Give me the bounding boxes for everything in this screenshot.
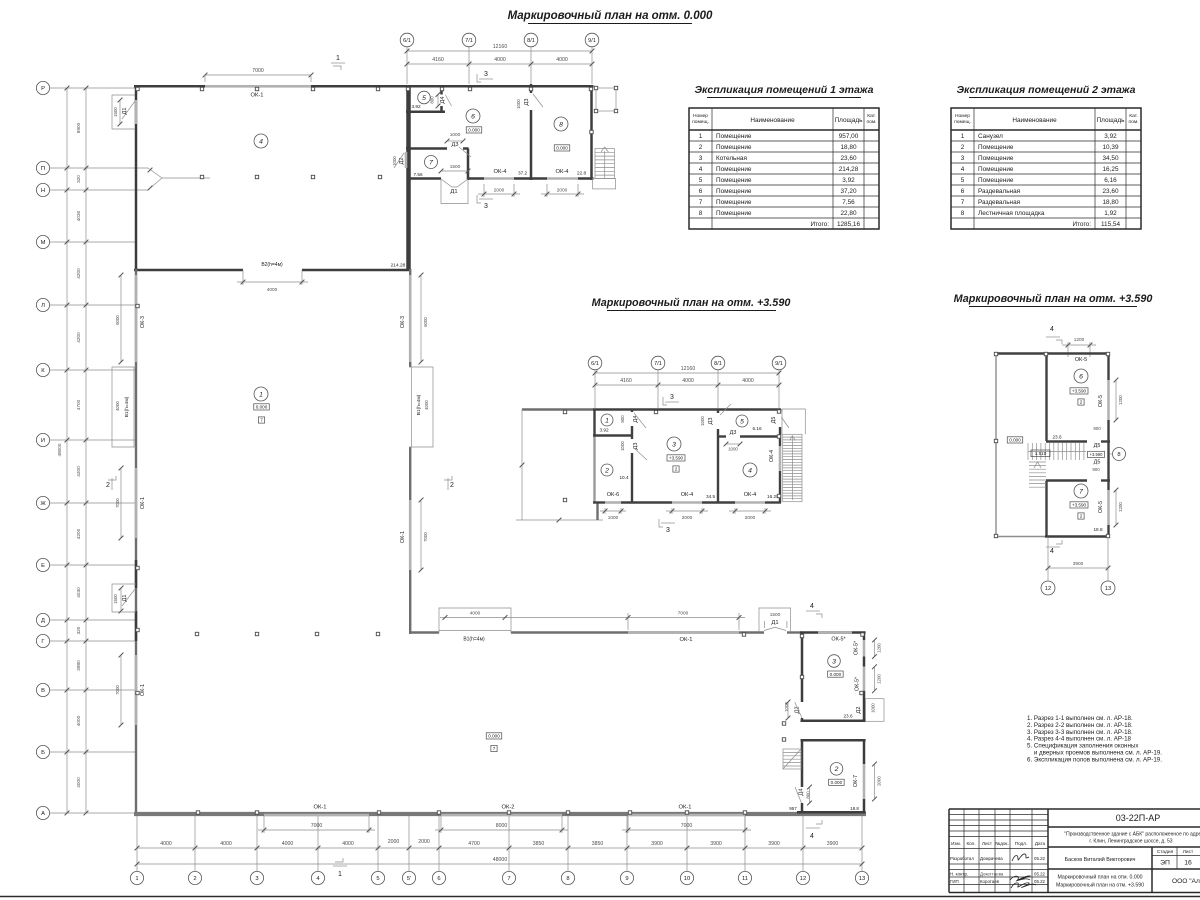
svg-text:34.5: 34.5 [706, 494, 716, 499]
svg-text:7,56: 7,56 [842, 199, 855, 206]
svg-text:7/1: 7/1 [465, 38, 473, 44]
svg-text:2000: 2000 [388, 839, 400, 845]
svg-text:7: 7 [429, 159, 433, 166]
svg-text:Д4: Д4 [633, 416, 639, 423]
svg-text:320: 320 [76, 175, 81, 183]
svg-text:4030: 4030 [76, 587, 81, 598]
svg-text:Д4: Д4 [799, 789, 805, 796]
svg-text:9/1: 9/1 [588, 38, 596, 44]
svg-text:+3.590: +3.590 [1072, 503, 1087, 508]
svg-text:Д5: Д5 [1094, 443, 1101, 449]
svg-text:пом.: пом. [866, 120, 876, 125]
svg-text:ООО "Альп: ООО "Альп [1172, 878, 1200, 885]
svg-text:05.22: 05.22 [1034, 879, 1046, 884]
svg-text:13: 13 [1105, 586, 1111, 592]
svg-text:Домрачева: Домрачева [980, 856, 1003, 861]
svg-text:3: 3 [699, 155, 703, 162]
svg-text:6.16: 6.16 [752, 426, 762, 431]
svg-text:6: 6 [1079, 373, 1083, 380]
svg-text:7.56: 7.56 [413, 172, 423, 177]
svg-text:3: 3 [961, 155, 965, 162]
svg-text:4000: 4000 [742, 378, 754, 384]
svg-text:ОК-1: ОК-1 [678, 805, 691, 811]
svg-text:9: 9 [625, 876, 628, 882]
svg-text:Л: Л [41, 303, 45, 309]
svg-text:+3.590: +3.590 [669, 456, 684, 461]
svg-text:В1(h=4м): В1(h=4м) [124, 396, 130, 417]
svg-text:помещ.: помещ. [954, 120, 971, 125]
svg-text:3: 3 [255, 876, 258, 882]
svg-text:4: 4 [810, 833, 814, 840]
svg-text:Помещение: Помещение [978, 144, 1014, 151]
svg-text:4000: 4000 [342, 841, 354, 847]
svg-text:0.000: 0.000 [830, 672, 842, 677]
svg-text:1,92: 1,92 [1104, 210, 1117, 217]
svg-text:2: 2 [961, 144, 965, 151]
svg-text:ОК-4: ОК-4 [555, 169, 569, 175]
svg-text:5: 5 [376, 876, 379, 882]
svg-text:Маркировочный план на отм. +3.: Маркировочный план на отм. +3.590 [592, 297, 791, 309]
svg-text:3900: 3900 [1073, 561, 1084, 566]
svg-text:Маркировочный план на отм. +3.: Маркировочный план на отм. +3.590 [1056, 882, 1144, 889]
svg-text:1200: 1200 [1118, 502, 1123, 512]
svg-text:Коротаев: Коротаев [980, 879, 1000, 884]
svg-text:2: 2 [1080, 514, 1083, 519]
svg-text:1000: 1000 [700, 416, 705, 426]
svg-text:18.8: 18.8 [850, 806, 859, 811]
svg-text:12: 12 [800, 876, 806, 882]
svg-text:Номер: Номер [955, 113, 970, 119]
svg-text:7/1: 7/1 [654, 361, 662, 367]
svg-text:Площадь: Площадь [835, 117, 863, 124]
svg-text:Д: Д [41, 618, 45, 624]
svg-text:7000: 7000 [423, 532, 428, 542]
svg-text:В: В [41, 688, 45, 694]
svg-text:Д3: Д3 [633, 443, 639, 450]
svg-text:Лестничная площадка: Лестничная площадка [978, 210, 1045, 217]
svg-text:5': 5' [407, 876, 411, 882]
svg-text:2000: 2000 [877, 776, 882, 786]
svg-text:пом.: пом. [1128, 120, 1138, 125]
svg-text:800: 800 [430, 96, 435, 104]
svg-text:Итого:: Итого: [1072, 221, 1091, 228]
svg-text:1: 1 [338, 871, 342, 878]
svg-text:18,80: 18,80 [1103, 199, 1119, 206]
svg-text:18,80: 18,80 [841, 144, 857, 151]
svg-text:7000: 7000 [681, 823, 693, 829]
svg-text:ОК-1: ОК-1 [400, 531, 406, 543]
svg-text:ОК-3: ОК-3 [140, 316, 146, 328]
svg-text:Н: Н [41, 188, 45, 194]
svg-text:4000: 4000 [160, 841, 172, 847]
svg-text:ОК-5*: ОК-5* [854, 640, 860, 655]
svg-text:8: 8 [961, 210, 965, 217]
svg-text:3900: 3900 [827, 841, 839, 847]
svg-text:05.22: 05.22 [1034, 856, 1046, 861]
svg-text:7000: 7000 [115, 498, 120, 508]
svg-text:8: 8 [559, 121, 563, 128]
svg-text:Д1: Д1 [771, 620, 778, 626]
svg-text:ЭП: ЭП [1160, 860, 1170, 867]
svg-text:4000: 4000 [470, 611, 481, 616]
svg-text:4000: 4000 [282, 841, 294, 847]
svg-text:4000: 4000 [494, 57, 506, 63]
svg-text:Разработал: Разработал [950, 856, 974, 861]
svg-text:05.22: 05.22 [1034, 872, 1046, 877]
svg-text:900: 900 [1092, 467, 1100, 472]
svg-text:ОК-5*: ОК-5* [855, 676, 861, 691]
svg-text:ОК-1: ОК-1 [140, 684, 146, 696]
svg-text:1500: 1500 [770, 612, 781, 617]
svg-text:2000: 2000 [494, 188, 505, 193]
svg-text:3900: 3900 [651, 841, 663, 847]
svg-text:2: 2 [193, 876, 196, 882]
svg-text:Площадь: Площадь [1097, 117, 1125, 124]
svg-text:Помещение: Помещение [716, 144, 752, 151]
svg-text:23.6: 23.6 [843, 714, 853, 719]
svg-text:ОК-1: ОК-1 [250, 93, 263, 99]
svg-text:3.92: 3.92 [411, 104, 421, 109]
svg-text:1000: 1000 [608, 515, 619, 520]
svg-text:Раздевальная: Раздевальная [978, 199, 1021, 206]
svg-text:1000: 1000 [728, 447, 738, 452]
svg-text:4000: 4000 [76, 777, 81, 788]
svg-text:8: 8 [1117, 452, 1120, 458]
svg-text:1200: 1200 [1074, 337, 1085, 342]
svg-text:Докеттаева: Докеттаева [980, 872, 1004, 877]
svg-text:0.000: 0.000 [831, 780, 843, 785]
svg-text:ОК-1: ОК-1 [313, 805, 326, 811]
svg-text:2000: 2000 [418, 839, 430, 845]
svg-text:Д1: Д1 [450, 189, 457, 195]
svg-text:4: 4 [1050, 548, 1054, 555]
svg-text:Подл.: Подл. [1015, 841, 1027, 846]
svg-text:Помещение: Помещение [716, 210, 752, 217]
svg-text:8: 8 [566, 876, 569, 882]
svg-text:А: А [41, 811, 45, 817]
svg-text:2: 2 [699, 144, 703, 151]
svg-text:6: 6 [699, 188, 703, 195]
svg-text:2: 2 [450, 482, 454, 489]
svg-text:10,39: 10,39 [1103, 144, 1119, 151]
svg-text:0.000: 0.000 [488, 734, 500, 739]
svg-text:Н. контр.: Н. контр. [950, 872, 968, 877]
svg-text:12160: 12160 [493, 44, 508, 50]
svg-text:4200: 4200 [76, 466, 81, 477]
svg-text:48000: 48000 [57, 443, 62, 456]
svg-text:3: 3 [672, 441, 676, 448]
svg-text:3,92: 3,92 [1104, 133, 1117, 140]
svg-text:И: И [41, 438, 45, 444]
svg-text:5: 5 [422, 95, 426, 102]
svg-text:ОК-7: ОК-7 [853, 775, 859, 787]
svg-text:Экспликация помещений 1 этажа: Экспликация помещений 1 этажа [695, 84, 874, 96]
svg-text:22.8: 22.8 [577, 171, 587, 176]
svg-text:2000: 2000 [557, 188, 568, 193]
svg-text:4200: 4200 [76, 528, 81, 539]
svg-text:4700: 4700 [468, 841, 480, 847]
svg-text:Д3: Д3 [730, 430, 737, 436]
svg-text:Помещение: Помещение [716, 166, 752, 173]
svg-text:34,50: 34,50 [1103, 155, 1119, 162]
svg-text:6000: 6000 [423, 317, 428, 327]
svg-text:2: 2 [1080, 400, 1083, 405]
svg-text:Кат.: Кат. [1129, 113, 1138, 119]
svg-text:4160: 4160 [432, 57, 444, 63]
svg-text:ОК-1: ОК-1 [140, 497, 146, 509]
svg-text:Д2: Д2 [856, 707, 862, 714]
svg-text:2: 2 [675, 467, 678, 472]
svg-text:П: П [41, 166, 45, 172]
svg-text:16: 16 [1184, 860, 1192, 867]
svg-text:4000: 4000 [682, 378, 694, 384]
svg-text:Д5: Д5 [1094, 460, 1101, 466]
svg-text:957,00: 957,00 [839, 133, 859, 140]
svg-text:В1(h=4м): В1(h=4м) [416, 394, 422, 415]
svg-text:6/1: 6/1 [591, 361, 599, 367]
svg-text:+3.590: +3.590 [1090, 452, 1104, 457]
svg-text:Д4: Д4 [440, 97, 446, 104]
svg-text:6. Экспликация полов выполнена: 6. Экспликация полов выполнена см. л. АР… [1027, 756, 1162, 763]
svg-text:8: 8 [699, 210, 703, 217]
svg-text:6/1: 6/1 [403, 38, 411, 44]
svg-text:ОК-4: ОК-4 [744, 492, 757, 498]
svg-text:Дата: Дата [1035, 841, 1046, 846]
svg-text:1000: 1000 [516, 99, 521, 109]
svg-text:Б: Б [41, 750, 45, 756]
svg-text:г. Клин, Ленинградское шоссе,: г. Клин, Ленинградское шоссе, д. 53 [1089, 839, 1172, 845]
svg-text:7: 7 [260, 418, 263, 423]
svg-text:М: М [41, 240, 46, 246]
svg-text:В2(h=4м): В2(h=4м) [261, 262, 283, 268]
svg-text:Помещение: Помещение [716, 199, 752, 206]
svg-text:4: 4 [961, 166, 965, 173]
svg-text:Помещение: Помещение [716, 188, 752, 195]
svg-text:1: 1 [699, 133, 703, 140]
svg-text:4160: 4160 [620, 378, 632, 384]
svg-text:03-22П-АР: 03-22П-АР [1116, 813, 1161, 823]
svg-text:6: 6 [437, 876, 440, 882]
svg-text:3980: 3980 [76, 660, 81, 671]
svg-text:1500: 1500 [113, 107, 118, 117]
svg-text:Ж: Ж [40, 501, 46, 507]
svg-text:0.000: 0.000 [556, 146, 568, 151]
svg-text:10.4: 10.4 [619, 475, 629, 480]
svg-text:5: 5 [740, 418, 744, 425]
svg-text:3: 3 [484, 71, 488, 78]
svg-text:6: 6 [471, 113, 475, 120]
svg-text:7000: 7000 [311, 823, 323, 829]
svg-text:Помещение: Помещение [978, 177, 1014, 184]
svg-text:900: 900 [1093, 426, 1101, 431]
svg-text:Помещение: Помещение [716, 177, 752, 184]
svg-text:4030: 4030 [76, 210, 81, 221]
svg-text:ОК-5: ОК-5 [1098, 395, 1104, 407]
svg-text:1200: 1200 [1118, 395, 1123, 405]
svg-text:8/1: 8/1 [714, 361, 722, 367]
svg-text:ГИП: ГИП [950, 879, 959, 884]
svg-text:4000: 4000 [76, 715, 81, 726]
svg-text:2000: 2000 [682, 515, 693, 520]
svg-text:4: 4 [1050, 326, 1054, 333]
svg-text:4: 4 [259, 138, 263, 145]
svg-text:214.28: 214.28 [391, 263, 406, 269]
svg-text:Лист: Лист [1183, 849, 1194, 855]
svg-text:Санузел: Санузел [978, 133, 1003, 140]
svg-text:+3.590: +3.590 [1072, 389, 1087, 394]
svg-text:6: 6 [961, 188, 965, 195]
svg-text:ОК-4: ОК-4 [769, 450, 775, 462]
svg-text:1: 1 [336, 55, 340, 62]
svg-text:Раздевальная: Раздевальная [978, 188, 1021, 195]
svg-text:7000: 7000 [678, 611, 689, 616]
svg-text:3900: 3900 [768, 841, 780, 847]
svg-text:22,80: 22,80 [841, 210, 857, 217]
svg-text:23.6: 23.6 [1052, 435, 1062, 440]
svg-text:6000: 6000 [115, 315, 120, 325]
svg-text:ОК-6: ОК-6 [607, 492, 620, 498]
svg-text:5: 5 [699, 177, 703, 184]
svg-text:Р: Р [41, 86, 45, 92]
svg-text:Номер: Номер [693, 113, 708, 119]
svg-text:Кат.: Кат. [867, 113, 876, 119]
svg-text:4: 4 [699, 166, 703, 173]
svg-text:18.8: 18.8 [1093, 527, 1103, 532]
svg-text:7000: 7000 [252, 68, 264, 74]
svg-text:3900: 3900 [710, 841, 722, 847]
svg-text:12: 12 [1045, 586, 1051, 592]
svg-text:4000: 4000 [267, 287, 278, 292]
svg-text:Маркировочный план на отм. 0.0: Маркировочный план на отм. 0.000 [508, 10, 713, 22]
svg-text:Стадия: Стадия [1157, 849, 1174, 855]
svg-text:Д3: Д3 [524, 99, 530, 106]
svg-text:12160: 12160 [681, 366, 696, 372]
svg-text:11: 11 [742, 876, 748, 882]
svg-text:48000: 48000 [493, 857, 508, 863]
svg-text:1000: 1000 [620, 441, 625, 451]
svg-text:800: 800 [620, 415, 625, 423]
svg-text:Е: Е [41, 563, 45, 569]
svg-text:7: 7 [507, 876, 510, 882]
svg-text:37.2: 37.2 [518, 171, 528, 176]
svg-text:9/1: 9/1 [775, 361, 783, 367]
svg-text:7: 7 [493, 746, 496, 751]
svg-text:ОК-4: ОК-4 [493, 169, 507, 175]
svg-text:1: 1 [605, 417, 609, 424]
svg-text:5900: 5900 [76, 122, 81, 133]
svg-text:2: 2 [834, 766, 839, 773]
svg-text:1: 1 [961, 133, 965, 140]
svg-text:3: 3 [832, 658, 836, 665]
svg-text:3850: 3850 [533, 841, 545, 847]
svg-text:Котельная: Котельная [716, 155, 747, 162]
svg-text:7: 7 [961, 199, 965, 206]
svg-text:4200: 4200 [76, 332, 81, 343]
svg-text:ОК-4: ОК-4 [681, 492, 694, 498]
svg-text:0.000: 0.000 [256, 405, 268, 410]
svg-text:1285,16: 1285,16 [837, 221, 861, 228]
svg-text:3,92: 3,92 [842, 177, 855, 184]
svg-text:Лист: Лист [982, 841, 993, 846]
svg-text:7: 7 [1079, 488, 1083, 495]
svg-text:23,60: 23,60 [841, 155, 857, 162]
svg-text:0.000: 0.000 [1009, 438, 1021, 443]
svg-text:6,16: 6,16 [1104, 177, 1117, 184]
svg-text:1500: 1500 [450, 164, 461, 169]
svg-text:1: 1 [259, 391, 263, 398]
svg-text:Д3: Д3 [452, 142, 459, 148]
svg-text:3850: 3850 [592, 841, 604, 847]
svg-text:1200: 1200 [877, 674, 882, 684]
svg-text:1000: 1000 [450, 132, 461, 137]
svg-text:Изм.: Изм. [951, 841, 961, 846]
svg-text:4700: 4700 [76, 399, 81, 410]
svg-text:3: 3 [484, 203, 488, 210]
svg-text:ОК-1: ОК-1 [679, 637, 692, 643]
svg-text:Д1: Д1 [122, 595, 128, 602]
svg-text:4000: 4000 [115, 401, 120, 411]
svg-text:Помещение: Помещение [978, 166, 1014, 173]
svg-text:957: 957 [789, 806, 797, 811]
svg-text:4: 4 [810, 603, 814, 610]
svg-text:8/1: 8/1 [527, 38, 535, 44]
svg-text:4: 4 [748, 467, 752, 474]
svg-text:4000: 4000 [556, 57, 568, 63]
svg-text:115,54: 115,54 [1101, 221, 1121, 228]
svg-text:5: 5 [961, 177, 965, 184]
svg-text:Маркировочный план на отм. +3.: Маркировочный план на отм. +3.590 [954, 293, 1153, 305]
svg-text:ОК-2: ОК-2 [501, 805, 514, 811]
svg-text:4200: 4200 [76, 268, 81, 279]
svg-text:320: 320 [76, 626, 81, 634]
svg-text:№док.: №док. [995, 841, 1008, 846]
svg-text:37,20: 37,20 [841, 188, 857, 195]
svg-text:В1(h=4м): В1(h=4м) [463, 637, 485, 643]
svg-text:23,60: 23,60 [1103, 188, 1119, 195]
svg-text:Кол.: Кол. [966, 841, 975, 846]
svg-text:2: 2 [106, 482, 110, 489]
svg-text:10: 10 [684, 876, 690, 882]
svg-text:"Производственное здание с АБК: "Производственное здание с АБК" располож… [1064, 832, 1200, 838]
svg-text:Помещение: Помещение [716, 133, 752, 140]
svg-text:3: 3 [666, 527, 670, 534]
svg-text:ОК-5: ОК-5 [1098, 501, 1104, 513]
svg-text:7: 7 [699, 199, 703, 206]
svg-text:ОК-5: ОК-5 [1075, 357, 1088, 363]
svg-text:Д5: Д5 [771, 417, 777, 424]
svg-text:1000: 1000 [871, 703, 876, 713]
svg-text:Экспликация помещений 2 этажа: Экспликация помещений 2 этажа [957, 84, 1136, 96]
svg-text:Маркировочный план на отм. 0.0: Маркировочный план на отм. 0.000 [1058, 874, 1143, 881]
svg-text:Наименование: Наименование [1012, 117, 1057, 124]
svg-text:Д1: Д1 [122, 108, 128, 115]
svg-text:7000: 7000 [115, 685, 120, 695]
svg-text:1500: 1500 [113, 594, 118, 604]
svg-text:13: 13 [859, 876, 865, 882]
svg-text:Помещение: Помещение [978, 155, 1014, 162]
svg-text:2: 2 [604, 467, 609, 474]
svg-text:2000: 2000 [745, 515, 756, 520]
svg-text:4000: 4000 [220, 841, 232, 847]
svg-text:4000: 4000 [424, 400, 429, 410]
svg-text:0.000: 0.000 [468, 128, 480, 133]
svg-text:Басков Виталий Викторович: Басков Виталий Викторович [1065, 856, 1136, 863]
svg-text:8000: 8000 [496, 823, 508, 829]
svg-text:Итого:: Итого: [810, 221, 829, 228]
svg-text:1: 1 [135, 876, 138, 882]
svg-text:ОК-5*: ОК-5* [831, 637, 846, 643]
svg-text:Д3: Д3 [708, 418, 714, 425]
